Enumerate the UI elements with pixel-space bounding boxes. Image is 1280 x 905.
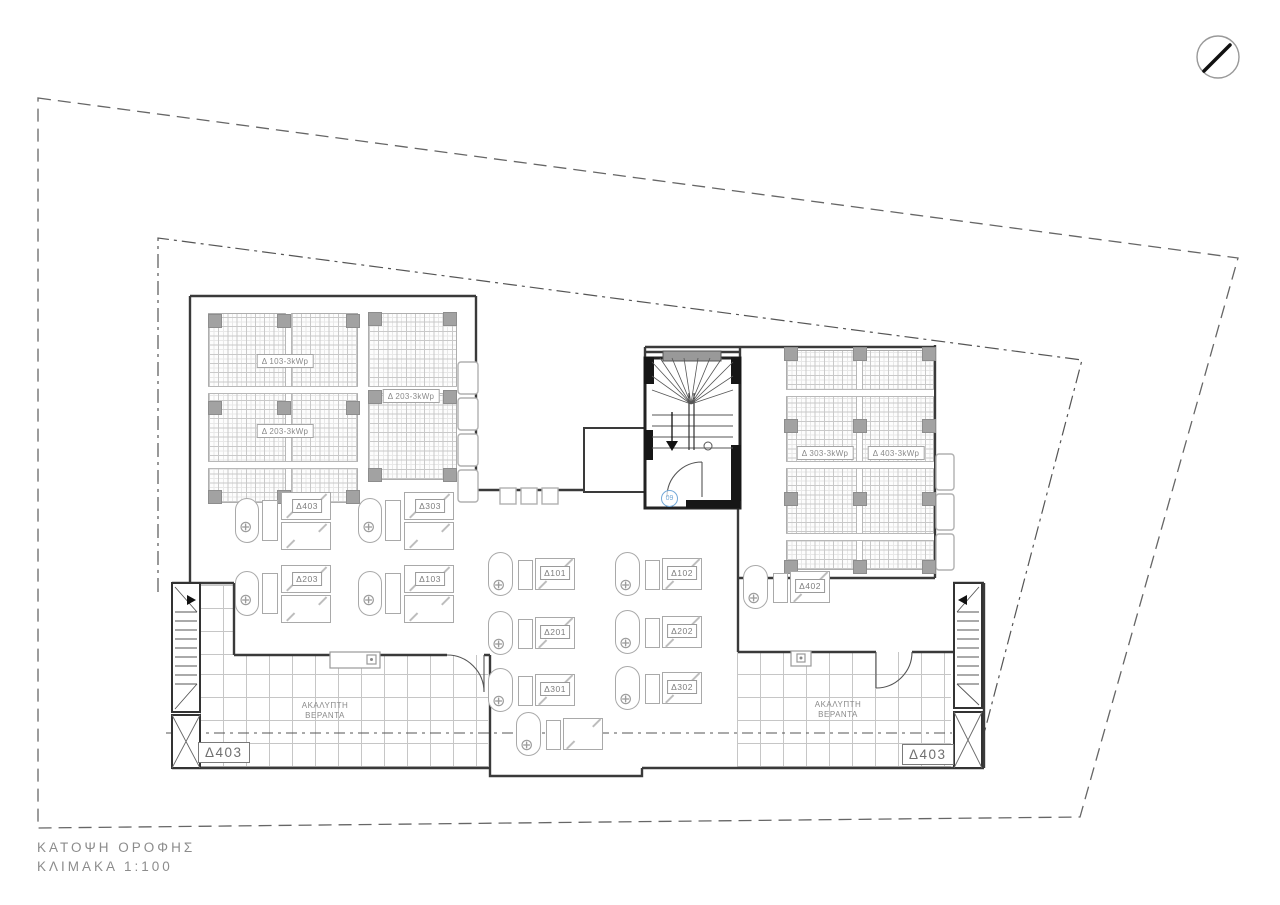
drawing-title: ΚΑΤΟΨΗ ΟΡΟΦΗΣ: [37, 838, 195, 857]
apartment-tag-right: Δ403: [902, 744, 954, 765]
door-tag: 09: [661, 490, 678, 507]
column-marker: [784, 492, 798, 506]
unit-label: Δ202: [667, 624, 697, 638]
pv-array-label: Δ 403-3kWp: [868, 446, 925, 460]
pv-array-label: Δ 103-3kWp: [257, 354, 314, 368]
column-marker: [346, 314, 360, 328]
pv-array-left-small: Δ 203-3kWp: [368, 313, 457, 480]
pv-walkway: [786, 461, 934, 469]
solar-water-heater: ⊕Δ101: [488, 552, 576, 598]
veranda-label-line1: ΑΚΑΛΥΠΤΗ: [815, 700, 862, 710]
column-marker: [784, 347, 798, 361]
valve-icon: ⊕: [239, 592, 252, 608]
column-marker: [922, 492, 936, 506]
pv-array-label: Δ 203-3kWp: [257, 424, 314, 438]
column-marker: [277, 401, 291, 415]
column-marker: [784, 419, 798, 433]
solar-water-heater: ⊕Δ402: [743, 565, 831, 611]
veranda-label-left: ΑΚΑΛΥΠΤΗ ΒΕΡΑΝΤΑ: [302, 701, 349, 721]
valve-icon: ⊕: [619, 691, 632, 707]
valve-icon: ⊕: [239, 519, 252, 535]
heater-connector: [518, 619, 533, 649]
unit-label: Δ102: [667, 566, 697, 580]
column-marker: [368, 468, 382, 482]
unit-label: Δ201: [540, 625, 570, 639]
solar-water-heater: ⊕Δ303: [356, 490, 456, 552]
valve-icon: ⊕: [747, 590, 760, 606]
column-marker: [853, 419, 867, 433]
column-marker: [922, 419, 936, 433]
valve-icon: ⊕: [492, 636, 505, 652]
heater-connector: [645, 674, 660, 704]
valve-icon: ⊕: [492, 577, 505, 593]
pv-walkway: [208, 461, 358, 469]
solar-water-heater: ⊕Δ103: [356, 563, 456, 625]
heater-connector: [645, 560, 660, 590]
pv-walkway: [208, 386, 358, 394]
valve-icon: ⊕: [492, 693, 505, 709]
heater-connector: [645, 618, 660, 648]
pv-array-left-large: Δ 103-3kWpΔ 203-3kWp: [208, 313, 358, 503]
veranda-label-line2: ΒΕΡΑΝΤΑ: [302, 711, 349, 721]
roof-plan-drawing: Δ 103-3kWpΔ 203-3kWpΔ 203-3kWpΔ 303-3kWp…: [0, 0, 1280, 905]
heater-connector: [385, 573, 401, 614]
title-block: ΚΑΤΟΨΗ ΟΡΟΦΗΣ ΚΛΙΜΑΚΑ 1:100: [37, 838, 195, 876]
column-marker: [853, 560, 867, 574]
unit-label: Δ103: [415, 572, 445, 586]
column-marker: [368, 390, 382, 404]
column-marker: [922, 347, 936, 361]
unit-label: Δ302: [667, 680, 697, 694]
solar-water-heater: ⊕Δ202: [615, 610, 703, 656]
column-marker: [368, 312, 382, 326]
column-marker: [443, 390, 457, 404]
heater-connector: [518, 676, 533, 706]
pv-walkway: [786, 389, 934, 397]
column-marker: [208, 401, 222, 415]
unit-label: Δ101: [540, 566, 570, 580]
heater-connector: [262, 500, 278, 541]
unit-label: Δ303: [415, 499, 445, 513]
heater-connector: [262, 573, 278, 614]
solar-water-heater: ⊕: [516, 712, 604, 758]
column-marker: [208, 314, 222, 328]
unit-label: Δ403: [292, 499, 322, 513]
valve-icon: ⊕: [362, 592, 375, 608]
pv-array-label: Δ 303-3kWp: [797, 446, 854, 460]
heater-connector: [773, 573, 788, 603]
column-marker: [922, 560, 936, 574]
column-marker: [853, 492, 867, 506]
solar-water-heater: ⊕Δ403: [233, 490, 333, 552]
apartment-tag-left: Δ403: [198, 742, 250, 763]
valve-icon: ⊕: [362, 519, 375, 535]
column-marker: [443, 468, 457, 482]
heater-connector: [518, 560, 533, 590]
equipment-layer: Δ 103-3kWpΔ 203-3kWpΔ 203-3kWpΔ 303-3kWp…: [0, 0, 1280, 905]
pv-array-label: Δ 203-3kWp: [383, 389, 440, 403]
veranda-label-line2: ΒΕΡΑΝΤΑ: [815, 710, 862, 720]
solar-water-heater: ⊕Δ203: [233, 563, 333, 625]
solar-water-heater: ⊕Δ302: [615, 666, 703, 712]
solar-water-heater: ⊕Δ102: [615, 552, 703, 598]
column-marker: [208, 490, 222, 504]
pv-array-right: Δ 303-3kWpΔ 403-3kWp: [786, 350, 934, 570]
solar-water-heater: ⊕Δ301: [488, 668, 576, 714]
unit-label: Δ301: [540, 682, 570, 696]
column-marker: [443, 312, 457, 326]
unit-label: Δ203: [292, 572, 322, 586]
veranda-label-right: ΑΚΑΛΥΠΤΗ ΒΕΡΑΝΤΑ: [815, 700, 862, 720]
drawing-scale: ΚΛΙΜΑΚΑ 1:100: [37, 857, 195, 876]
solar-water-heater: ⊕Δ201: [488, 611, 576, 657]
valve-icon: ⊕: [619, 635, 632, 651]
heater-connector: [546, 720, 561, 750]
column-marker: [277, 314, 291, 328]
column-marker: [346, 401, 360, 415]
heater-connector: [385, 500, 401, 541]
valve-icon: ⊕: [520, 737, 533, 753]
unit-label: Δ402: [795, 579, 825, 593]
valve-icon: ⊕: [619, 577, 632, 593]
veranda-label-line1: ΑΚΑΛΥΠΤΗ: [302, 701, 349, 711]
column-marker: [853, 347, 867, 361]
pv-walkway: [786, 533, 934, 541]
